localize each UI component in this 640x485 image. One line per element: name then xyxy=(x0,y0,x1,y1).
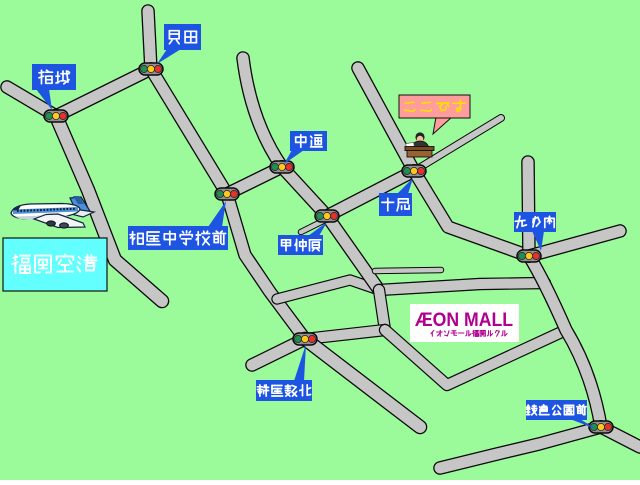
svg-text:ÆON MALL: ÆON MALL xyxy=(415,310,513,331)
